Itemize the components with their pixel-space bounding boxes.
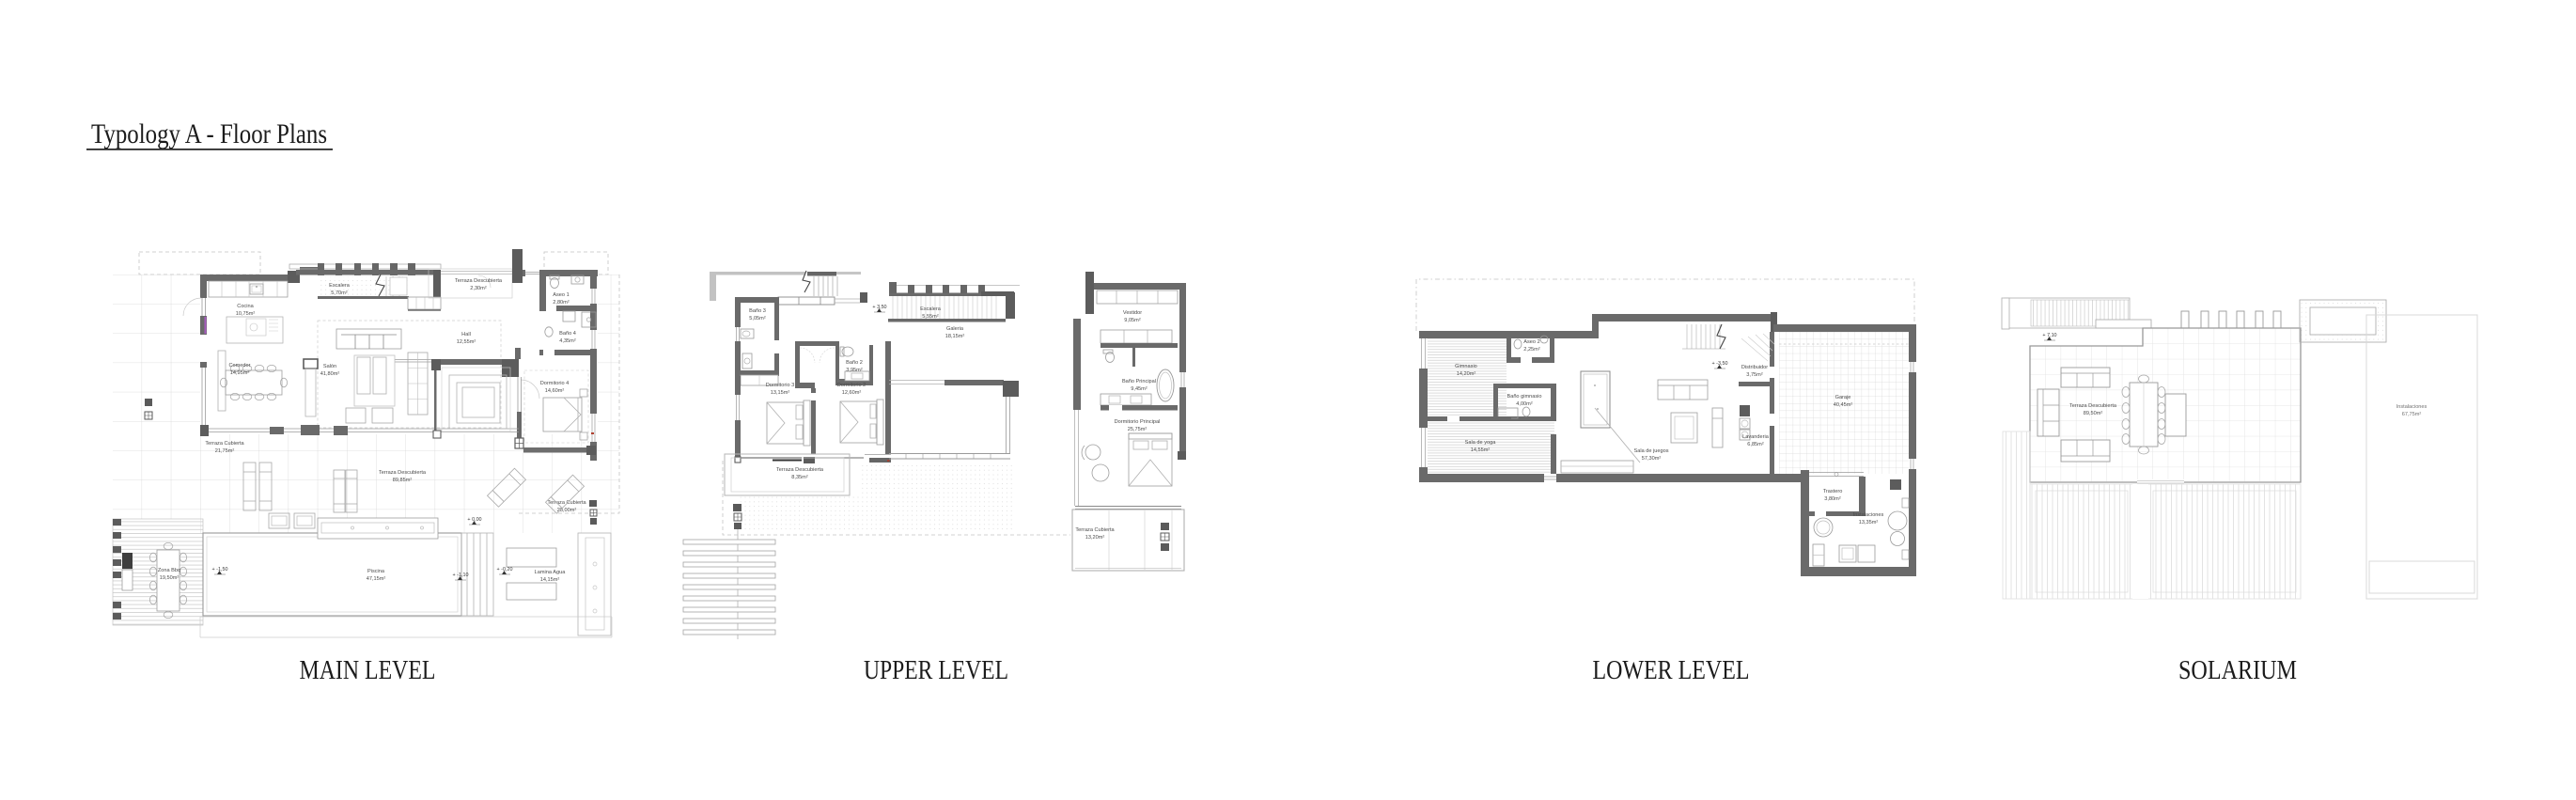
svg-text:LOWER LEVEL: LOWER LEVEL: [1593, 656, 1750, 685]
svg-text:SOLARIUM: SOLARIUM: [2178, 656, 2297, 685]
svg-text:Typology A - Floor Plans: Typology A - Floor Plans: [91, 118, 327, 149]
svg-text:UPPER LEVEL: UPPER LEVEL: [864, 656, 1008, 685]
svg-text:MAIN LEVEL: MAIN LEVEL: [300, 656, 436, 685]
